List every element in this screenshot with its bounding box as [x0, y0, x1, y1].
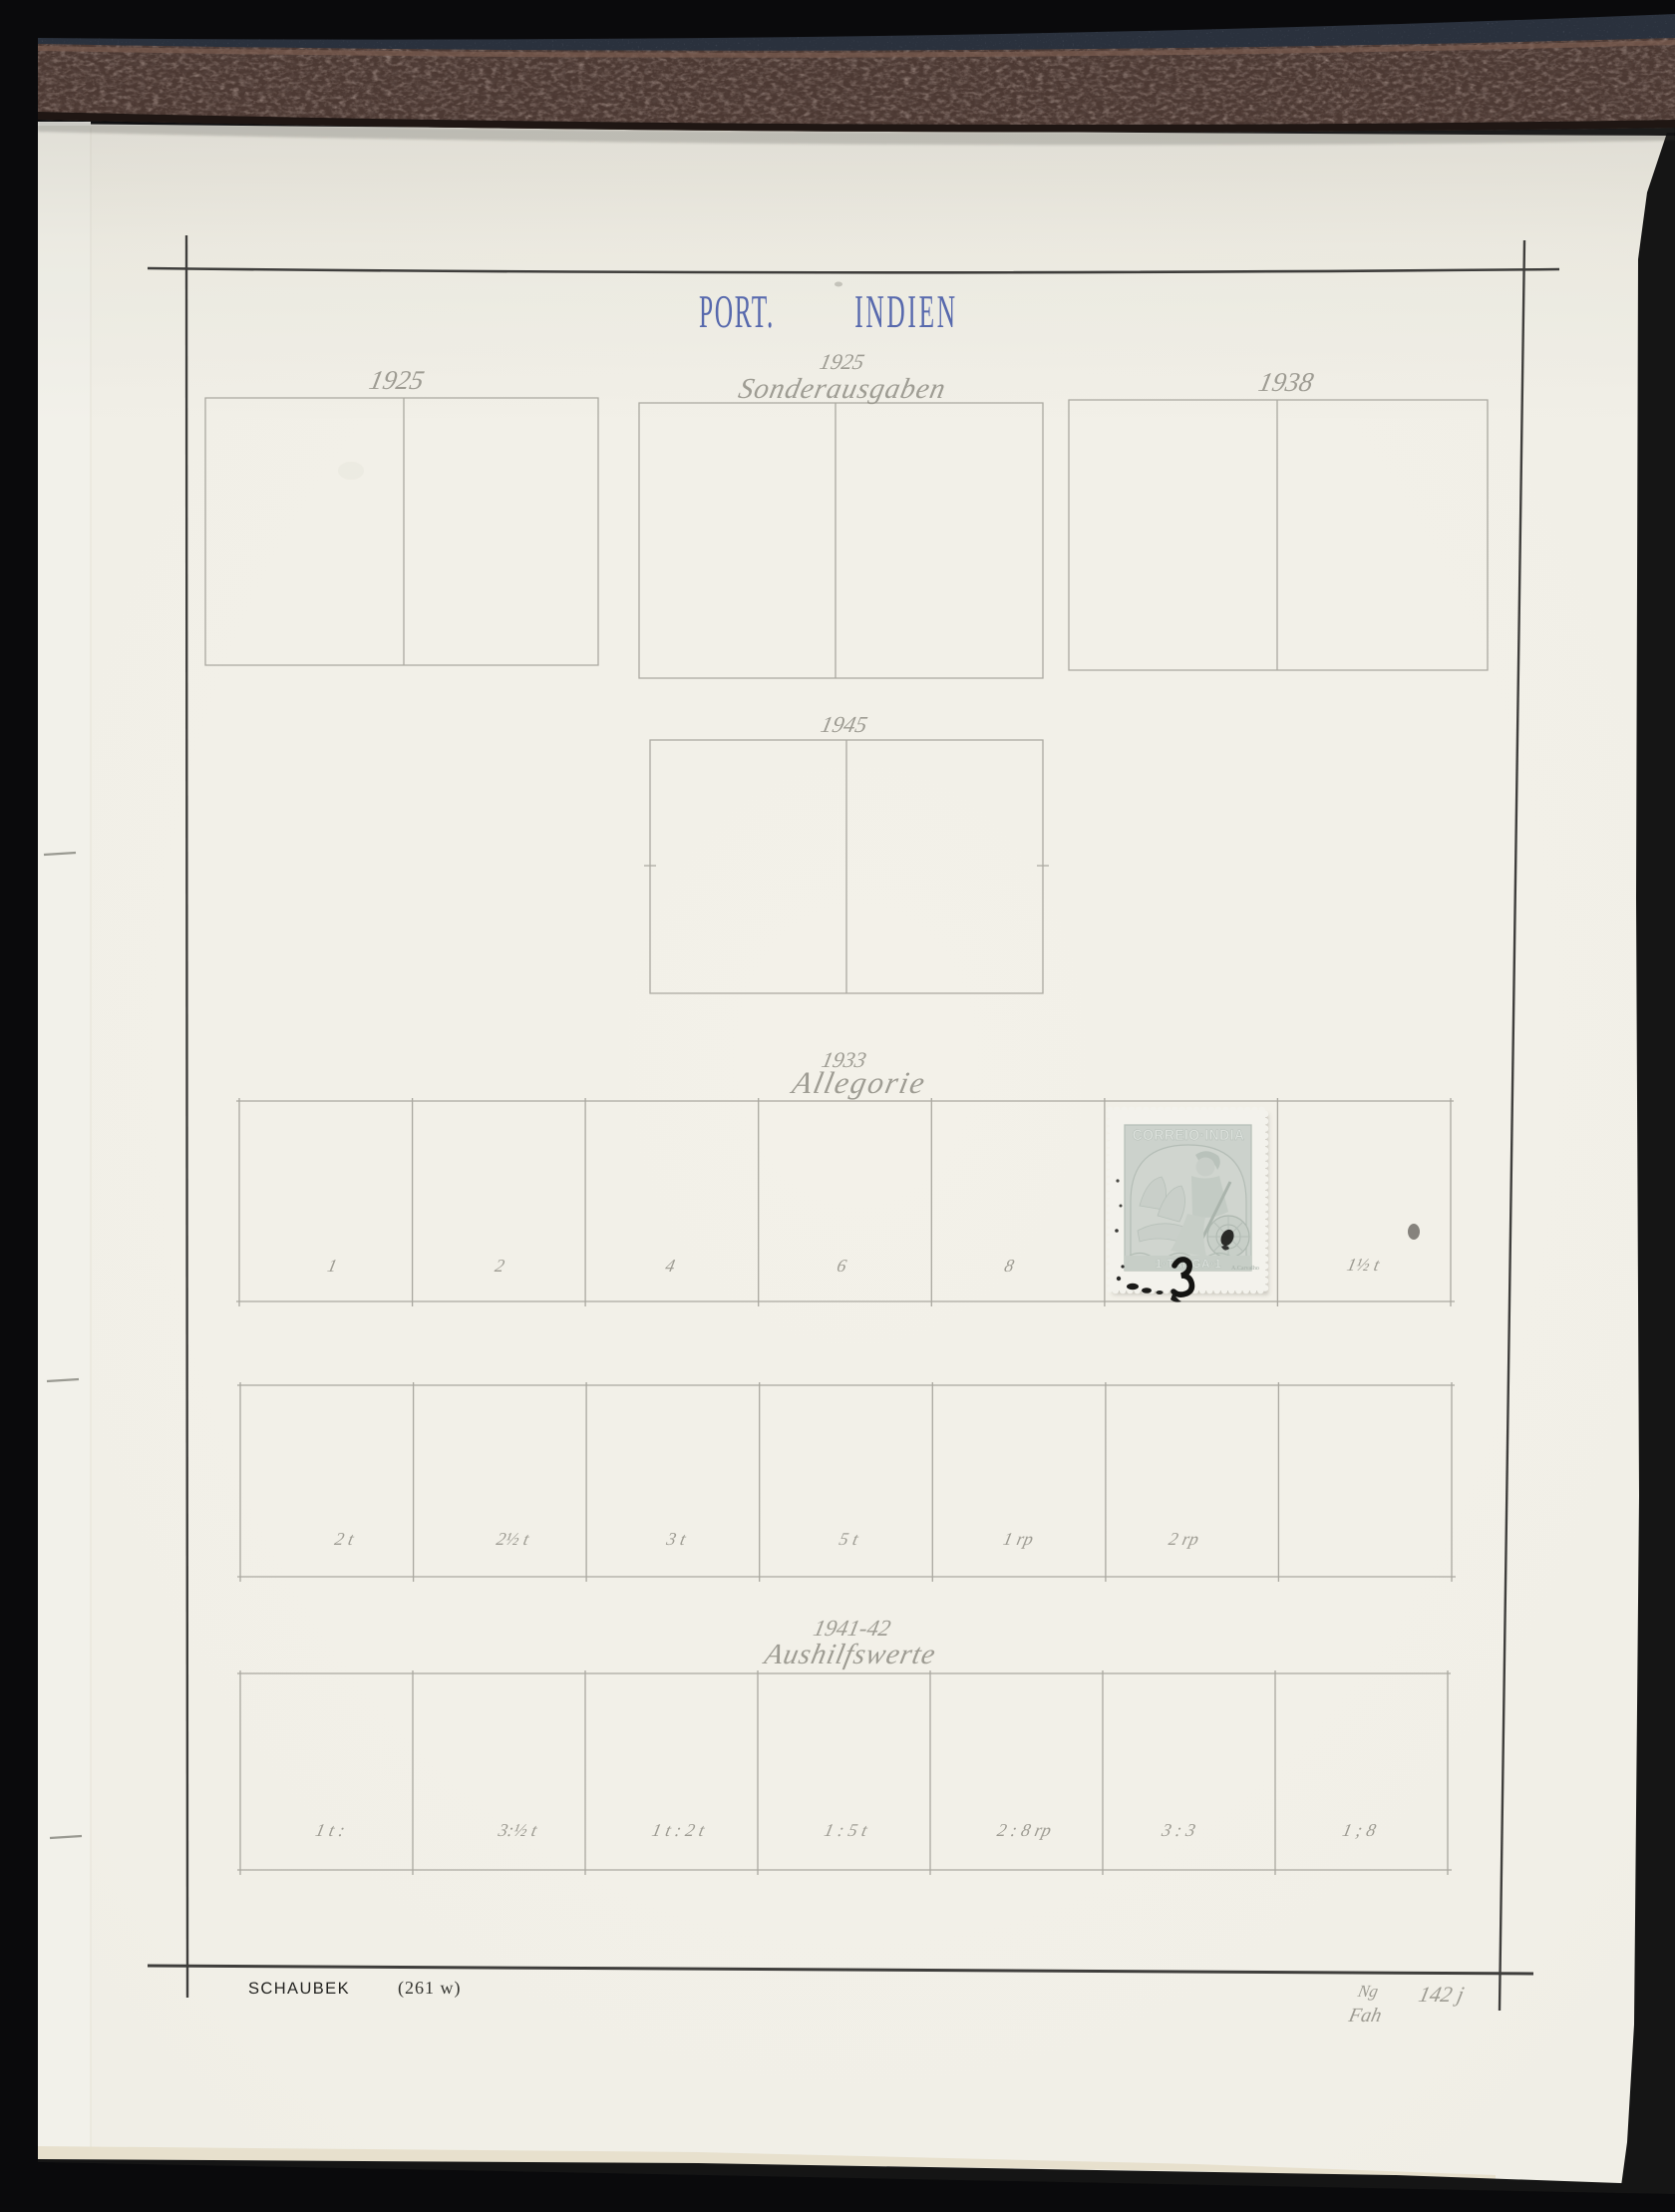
svg-text:1 t :: 1 t : — [314, 1820, 347, 1840]
svg-text:CORREIO·INDIA: CORREIO·INDIA — [1133, 1127, 1245, 1144]
svg-text:SCHAUBEK: SCHAUBEK — [248, 1980, 350, 1998]
svg-text:1 : 5 t: 1 : 5 t — [823, 1820, 870, 1840]
svg-text:1 ; 8: 1 ; 8 — [1341, 1820, 1378, 1840]
svg-text:A.Carvalho: A.Carvalho — [1231, 1265, 1259, 1272]
svg-text:1 t : 2 t: 1 t : 2 t — [650, 1820, 707, 1840]
svg-text:Fah: Fah — [1346, 2005, 1384, 2027]
svg-text:Allegorie: Allegorie — [788, 1065, 930, 1100]
svg-text:PORT.: PORT. — [699, 286, 775, 338]
svg-text:1938: 1938 — [1256, 367, 1317, 397]
svg-text:3 : 3: 3 : 3 — [1160, 1820, 1197, 1840]
svg-text:3:½ t: 3:½ t — [496, 1820, 539, 1840]
svg-text:142 j: 142 j — [1417, 1982, 1467, 2007]
svg-text:Aushilfswerte: Aushilfswerte — [760, 1639, 939, 1670]
svg-text:2 rp: 2 rp — [1167, 1529, 1200, 1549]
svg-text:1925: 1925 — [367, 365, 427, 395]
svg-text:1 rp: 1 rp — [1001, 1529, 1035, 1549]
svg-text:(261 w): (261 w) — [398, 1978, 462, 1998]
svg-text:1941-42: 1941-42 — [812, 1616, 893, 1641]
svg-text:INDIEN: INDIEN — [854, 286, 958, 338]
svg-text:2 : 8 rp: 2 : 8 rp — [995, 1820, 1053, 1840]
svg-text:1½ t: 1½ t — [1345, 1255, 1382, 1275]
svg-text:Ng: Ng — [1355, 1982, 1380, 2001]
svg-text:1945: 1945 — [819, 712, 869, 737]
svg-text:2½ t: 2½ t — [495, 1529, 531, 1549]
svg-text:1925: 1925 — [818, 349, 866, 374]
svg-text:Sonderausgaben: Sonderausgaben — [736, 373, 949, 405]
